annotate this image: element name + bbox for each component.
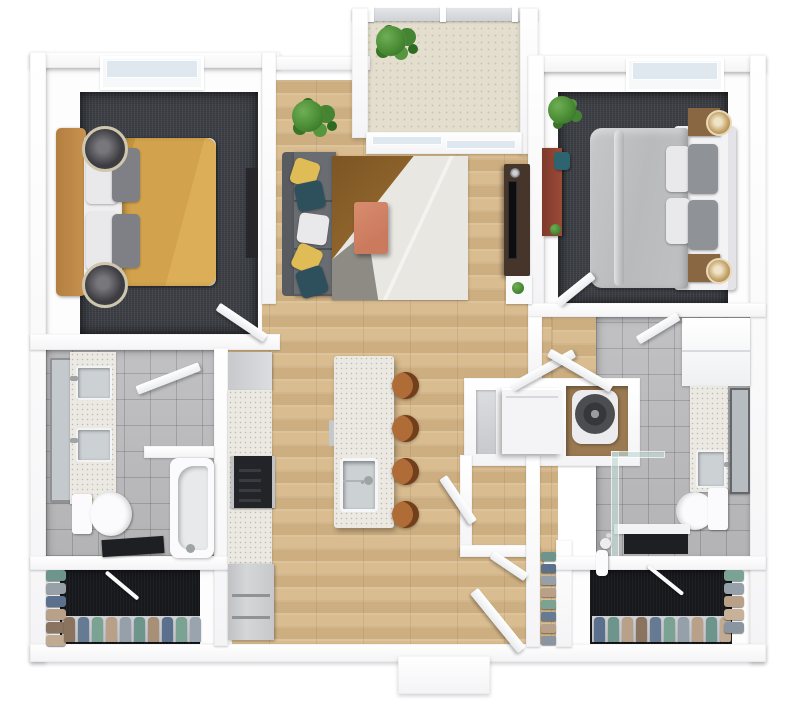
faucet — [70, 438, 78, 443]
hanging-garment — [148, 617, 159, 642]
island-sink — [340, 458, 378, 512]
sliding-door-glass — [372, 136, 442, 145]
towel — [596, 550, 608, 576]
refrigerator-handles — [232, 616, 270, 619]
shoe-pair — [541, 600, 556, 609]
area-rug — [332, 156, 468, 300]
bed2-nightstand-lamp — [706, 258, 732, 284]
bathroom1-sink — [76, 428, 112, 462]
island-faucet — [364, 476, 373, 485]
wall — [30, 334, 280, 350]
bed2-duvet-fold — [614, 130, 624, 286]
wall — [30, 556, 230, 570]
hanging-garment — [64, 617, 75, 642]
wall — [262, 52, 276, 304]
wall — [144, 446, 214, 458]
bed2-pillow-white — [666, 146, 690, 192]
balcony-wall-left — [352, 8, 368, 138]
bar-stools — [390, 372, 420, 532]
shower-floor — [624, 534, 688, 554]
hanging-garment — [594, 617, 605, 642]
shoe-pair — [541, 624, 556, 633]
hanging-garment — [724, 570, 744, 581]
railing-post — [440, 6, 446, 22]
hanging-garment — [134, 617, 145, 642]
coffee-table — [354, 202, 388, 254]
shoe-pair — [541, 576, 556, 585]
hanging-garment — [724, 622, 744, 633]
sofa-pillow-teal — [293, 179, 326, 212]
bathroom2-sink — [696, 450, 726, 488]
closet2-hanging-clothes-bottom — [592, 614, 730, 642]
bedroom1-window-glass — [106, 60, 198, 78]
bed2-pillow-gray — [688, 200, 718, 250]
console-plant — [512, 282, 524, 294]
bathtub-basin — [178, 466, 208, 550]
bed2-nightstand-lamp — [706, 110, 732, 136]
bathroom2-cabinet — [682, 318, 750, 386]
shoe-pair — [541, 552, 556, 561]
hanging-garment — [120, 617, 131, 642]
bar-stool — [392, 501, 419, 528]
rug-seam — [332, 156, 468, 300]
bathtub-faucet — [186, 544, 195, 553]
kitchen-tall-cabinet — [228, 352, 272, 390]
bar-stool — [392, 458, 419, 485]
floor-plan — [0, 0, 800, 702]
hanging-garment — [664, 617, 675, 642]
bed2-pillow-white — [666, 198, 690, 244]
hanging-garment — [692, 617, 703, 642]
desk-chair — [554, 152, 570, 170]
railing-post — [368, 6, 374, 22]
shoe-rack — [539, 550, 557, 644]
bed2-pillow-gray — [688, 144, 718, 194]
faucet — [70, 376, 78, 381]
shower-ledge — [614, 524, 690, 534]
bathroom1-mirror — [50, 358, 72, 502]
bedroom1-dresser — [244, 168, 258, 258]
sofa-pillow-white — [296, 212, 330, 246]
entry-step — [398, 656, 490, 694]
bathroom1-sink — [76, 366, 112, 400]
shoe-pair — [541, 636, 556, 645]
wall — [544, 556, 766, 570]
hanging-garment — [636, 617, 647, 642]
balcony-plant — [376, 26, 406, 56]
hanging-garment — [78, 617, 89, 642]
bathroom2-toilet-tank — [708, 488, 728, 530]
hanging-garment — [608, 617, 619, 642]
closet2-hanging-clothes-right — [722, 569, 746, 639]
tv-console — [504, 164, 530, 276]
wall — [750, 55, 766, 662]
bar-stool — [392, 415, 419, 442]
hanging-garment — [106, 617, 117, 642]
bedroom2-plant — [548, 96, 576, 124]
laundry-shelf — [476, 390, 496, 454]
bed1-pillow-gray — [112, 214, 140, 268]
hanging-garment — [46, 570, 66, 581]
wall — [526, 455, 540, 647]
sliding-door-glass — [446, 140, 516, 149]
hanging-garment — [724, 596, 744, 607]
hanging-garment — [92, 617, 103, 642]
refrigerator — [228, 564, 274, 640]
bathroom2-cabinet-seam — [682, 350, 750, 352]
shower-glass — [612, 452, 664, 457]
wall — [214, 348, 228, 646]
hanging-garment — [162, 617, 173, 642]
shoe-pair — [541, 588, 556, 597]
tv — [509, 182, 516, 258]
hanging-garment — [678, 617, 689, 642]
living-room-plant — [292, 100, 324, 132]
dishwasher-handle — [329, 420, 334, 446]
hanging-garment — [724, 609, 744, 620]
console-speaker — [510, 168, 520, 178]
shower-head — [600, 538, 611, 549]
hanging-garment — [724, 583, 744, 594]
hanging-garment — [706, 617, 717, 642]
washer-panel-line — [506, 396, 558, 398]
shoe-pair — [541, 612, 556, 621]
hanging-garment — [46, 596, 66, 607]
hanging-garment — [46, 583, 66, 594]
bathroom1-toilet-bowl — [90, 492, 132, 536]
refrigerator-handles — [232, 594, 270, 597]
hanging-garment — [650, 617, 661, 642]
railing-post — [512, 6, 518, 22]
hanging-garment — [190, 617, 201, 642]
desk-plant — [550, 224, 561, 235]
shoe-pair — [541, 564, 556, 573]
stove-grate — [239, 462, 261, 502]
hanging-garment — [176, 617, 187, 642]
closet1-hanging-clothes-bottom — [62, 614, 200, 642]
bed1-nightstand-lamp — [82, 262, 128, 308]
bathroom2-mirror — [730, 388, 750, 494]
bed1-nightstand-lamp — [82, 126, 128, 172]
shower-glass — [612, 452, 618, 556]
bathroom1-toilet-tank — [72, 494, 92, 534]
hanging-garment — [622, 617, 633, 642]
bedroom2-window-glass — [632, 62, 718, 80]
bar-stool — [392, 372, 419, 399]
wall — [528, 303, 766, 317]
dryer-drum — [575, 394, 615, 434]
